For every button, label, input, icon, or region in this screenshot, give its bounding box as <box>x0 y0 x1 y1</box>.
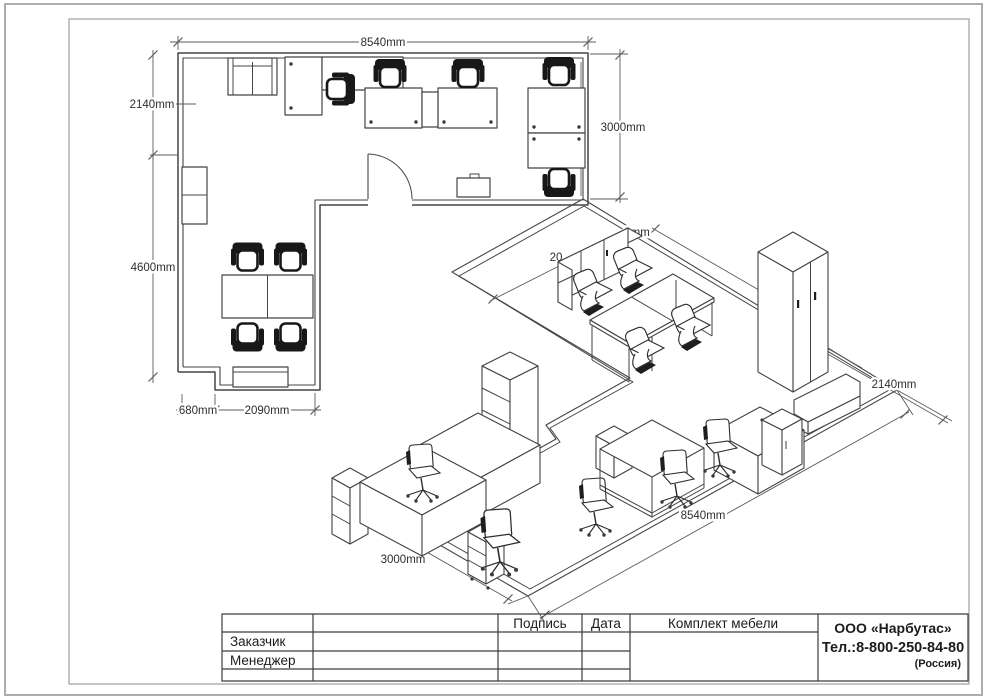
iso-dim-bottom-label: 8540mm <box>681 510 726 522</box>
meeting-chair-plan <box>274 324 307 352</box>
office-chair-iso <box>579 478 613 537</box>
date-header: Дата <box>591 616 621 631</box>
sofa-plan <box>228 58 277 95</box>
company-name: ООО «Нарбутас» <box>834 620 952 636</box>
office-chair-plan <box>543 57 576 85</box>
wardrobe-iso <box>758 232 828 392</box>
drawing-canvas: 8540mm 2140mm 4600mm 3000mm 680mm 2090mm <box>0 0 988 700</box>
office-chair-plan <box>543 169 576 197</box>
meeting-chair-plan <box>231 324 264 352</box>
dim-top-label: 8540mm <box>361 37 406 49</box>
drawing-sheet: 8540mm 2140mm 4600mm 3000mm 680mm 2090mm <box>0 0 988 700</box>
company-phone: Тел.:8-800-250-84-80 <box>822 640 964 656</box>
wall-cabinet-plan <box>457 174 490 197</box>
meeting-chair-plan <box>231 243 264 271</box>
title-block: Подпись Дата Комплект мебели Заказчик Ме… <box>222 614 968 681</box>
left-cabinet-plan <box>182 167 207 224</box>
desk-pair-right-plan <box>528 88 585 168</box>
signature-header: Подпись <box>513 616 566 631</box>
iso-dim-right-label: 2140mm <box>872 379 917 391</box>
meeting-table-plan <box>222 275 313 318</box>
dim-bottom-small-label: 680mm <box>179 405 217 417</box>
door <box>368 154 412 199</box>
furniture-set-header: Комплект мебели <box>668 616 778 631</box>
meeting-chair-iso <box>612 246 652 294</box>
pedestal-iso <box>762 409 802 475</box>
customer-label: Заказчик <box>230 634 286 649</box>
desk-pair-top-plan <box>365 88 497 128</box>
manager-label: Менеджер <box>230 653 296 668</box>
company-country: (Россия) <box>915 658 962 670</box>
dim-right-label: 3000mm <box>601 122 646 134</box>
low-cabinet-plan <box>233 367 288 387</box>
dim-left-upper-label: 2140mm <box>130 99 175 111</box>
iso-view: 3000mm 8540mm 2140mm 20 0mm <box>332 199 952 621</box>
meeting-chair-plan <box>274 243 307 271</box>
dim-left-lower-label: 4600mm <box>131 262 176 274</box>
office-chair-iso <box>660 450 694 509</box>
iso-dim-left-label: 3000mm <box>381 554 426 566</box>
office-chair-plan <box>452 59 485 87</box>
dim-bottom-label: 2090mm <box>245 405 290 417</box>
meeting-chair-iso <box>670 303 710 351</box>
floor-plan: 8540mm 2140mm 4600mm 3000mm 680mm 2090mm <box>130 36 646 417</box>
